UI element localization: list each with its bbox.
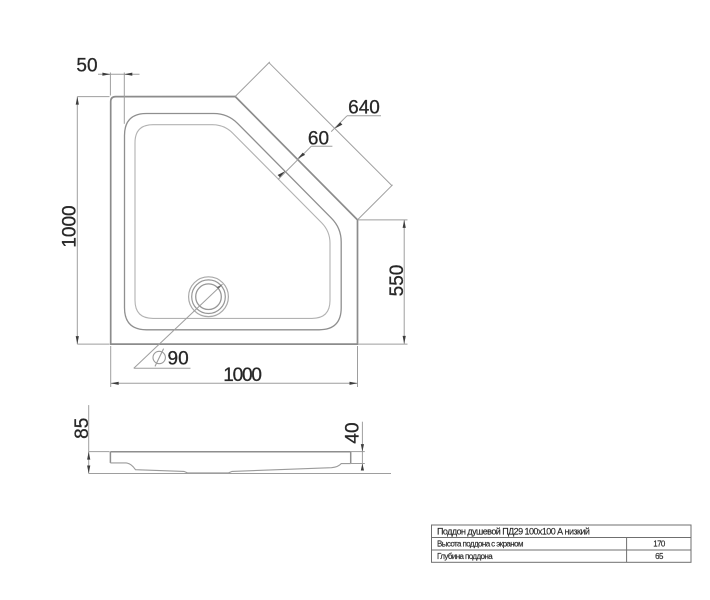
- svg-text:1000: 1000: [60, 205, 81, 247]
- svg-text:640: 640: [348, 97, 380, 118]
- svg-text:Высота поддона с экраном: Высота поддона с экраном: [437, 539, 523, 548]
- svg-text:170: 170: [653, 539, 666, 548]
- svg-text:65: 65: [655, 552, 664, 561]
- svg-text:90: 90: [168, 349, 189, 370]
- svg-text:1000: 1000: [223, 365, 261, 386]
- svg-text:85: 85: [72, 418, 93, 439]
- svg-text:Глубина поддона: Глубина поддона: [437, 552, 493, 561]
- svg-text:40: 40: [343, 422, 364, 443]
- svg-text:550: 550: [387, 265, 408, 297]
- svg-text:Поддон душевой ПД29 100х100 А: Поддон душевой ПД29 100х100 А низкий: [437, 527, 590, 537]
- svg-text:60: 60: [308, 129, 329, 150]
- svg-text:50: 50: [76, 55, 97, 76]
